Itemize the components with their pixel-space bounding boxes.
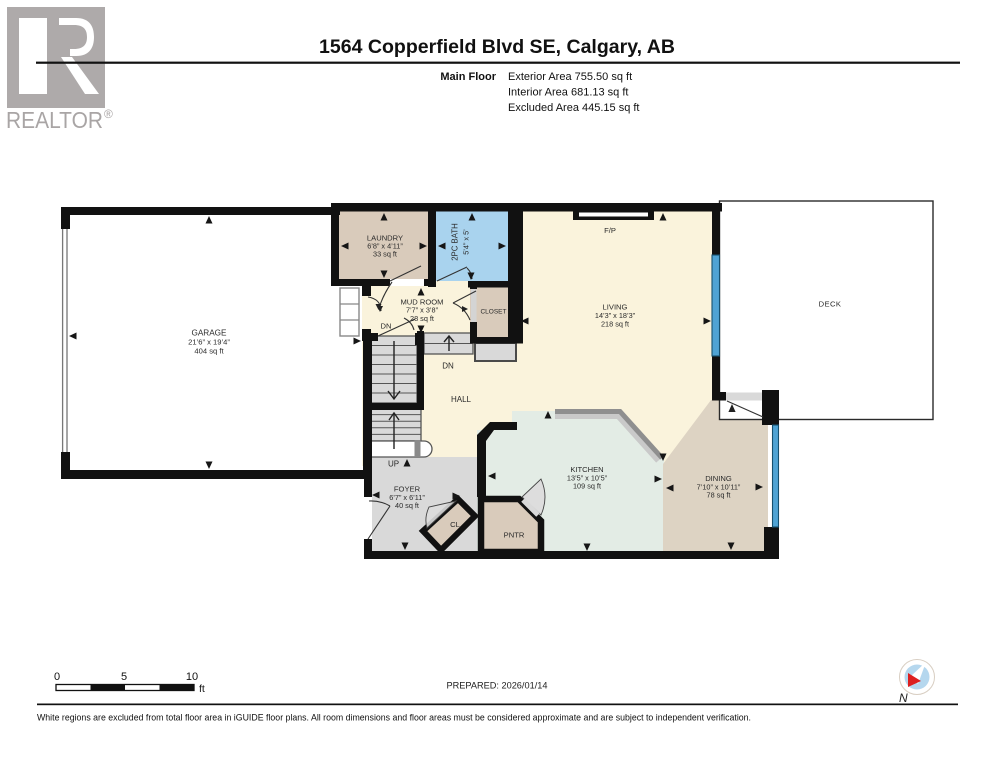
svg-text:5: 5 — [121, 671, 127, 683]
svg-text:404 sq ft: 404 sq ft — [194, 346, 224, 355]
svg-text:DECK: DECK — [819, 300, 842, 309]
svg-text:CLOSET: CLOSET — [480, 309, 506, 316]
svg-text:REALTOR: REALTOR — [6, 107, 103, 133]
svg-text:Excluded Area 445.15 sq ft: Excluded Area 445.15 sq ft — [508, 102, 639, 114]
svg-text:10: 10 — [186, 671, 198, 683]
svg-text:GARAGE: GARAGE — [191, 329, 227, 338]
svg-text:Exterior Area 755.50 sq ft: Exterior Area 755.50 sq ft — [508, 71, 632, 83]
svg-text:0: 0 — [54, 671, 60, 683]
svg-text:40 sq ft: 40 sq ft — [395, 501, 419, 510]
svg-text:33 sq ft: 33 sq ft — [373, 249, 397, 258]
svg-text:PREPARED: 2026/01/14: PREPARED: 2026/01/14 — [447, 681, 548, 691]
svg-text:Main Floor: Main Floor — [440, 71, 496, 83]
svg-text:78 sq ft: 78 sq ft — [707, 491, 731, 500]
svg-text:®: ® — [104, 107, 113, 121]
svg-text:28 sq ft: 28 sq ft — [410, 314, 434, 323]
svg-text:N: N — [899, 691, 908, 705]
svg-text:1564 Copperfield Blvd SE, Calg: 1564 Copperfield Blvd SE, Calgary, AB — [319, 37, 675, 58]
svg-text:PNTR: PNTR — [504, 531, 525, 540]
svg-text:21’6” x 19’4”: 21’6” x 19’4” — [188, 338, 230, 347]
svg-text:DN: DN — [442, 362, 454, 371]
svg-text:CL: CL — [450, 520, 460, 529]
svg-text:5’4” x 5’: 5’4” x 5’ — [462, 229, 471, 255]
svg-text:109 sq ft: 109 sq ft — [573, 482, 601, 491]
svg-text:218 sq ft: 218 sq ft — [601, 319, 629, 328]
svg-text:Interior Area 681.13 sq ft: Interior Area 681.13 sq ft — [508, 87, 628, 99]
svg-text:White regions are excluded fro: White regions are excluded from total fl… — [37, 713, 751, 723]
svg-text:UP: UP — [388, 460, 399, 469]
svg-text:HALL: HALL — [451, 395, 472, 404]
svg-text:2PC BATH: 2PC BATH — [451, 223, 460, 261]
svg-text:ft: ft — [199, 683, 205, 695]
svg-text:DN: DN — [381, 322, 392, 331]
svg-text:F/P: F/P — [604, 226, 616, 235]
